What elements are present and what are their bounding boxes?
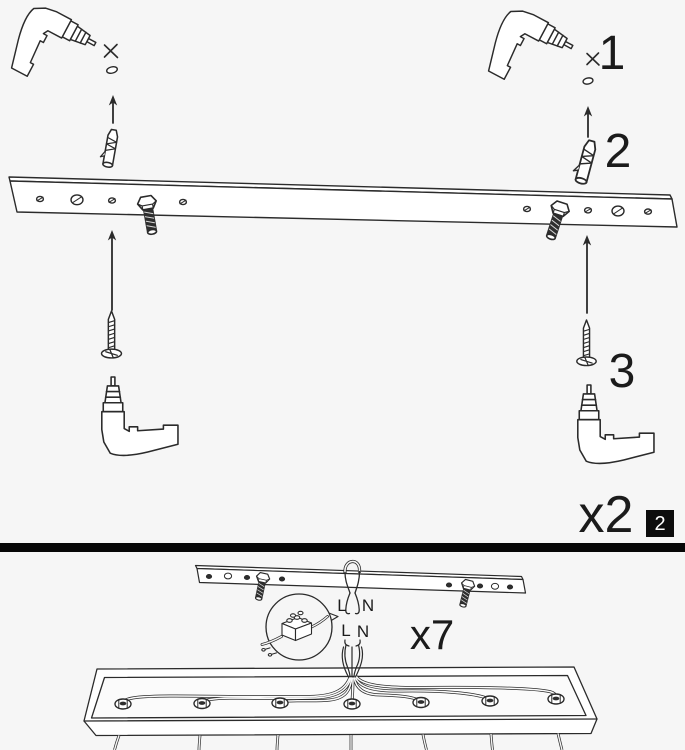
ceiling-hole-icon xyxy=(106,66,118,75)
multiplier-x7: x7 xyxy=(410,611,454,658)
step-badge: 2 xyxy=(646,510,674,537)
cable-gland-nut xyxy=(548,694,564,704)
drill-icon xyxy=(2,1,100,98)
rail-hole-large xyxy=(612,206,624,216)
step-number-1: 1 xyxy=(599,27,626,80)
step-number-2: 2 xyxy=(605,125,632,178)
top-panel: 1 2 3 x2 2 xyxy=(2,1,677,544)
cable-gland-nut xyxy=(272,698,288,708)
screw-icon xyxy=(102,311,122,358)
cable-gland-nut xyxy=(344,699,360,709)
wire-label-live-lower: L xyxy=(341,621,350,640)
drill-icon xyxy=(479,4,577,101)
step-number-3: 3 xyxy=(609,345,636,398)
assembly-instructions-page: 1 2 3 x2 2 xyxy=(0,0,685,750)
arrow-up-icon xyxy=(584,106,592,137)
arrow-up-icon xyxy=(109,95,117,123)
cable-gland-nut xyxy=(413,698,429,708)
pendant-wires xyxy=(115,734,563,750)
ceiling-hole-icon xyxy=(582,77,593,85)
arrow-up-icon xyxy=(108,230,116,310)
rail-hole-small xyxy=(645,209,652,214)
rail-hole-small xyxy=(180,199,187,204)
rail-hole-small xyxy=(524,206,531,211)
instruction-diagram: 1 2 3 x2 2 xyxy=(0,0,685,750)
wire-label-neutral-lower: N xyxy=(357,622,369,641)
rail-hole-small xyxy=(37,196,44,201)
drill-icon xyxy=(102,377,178,455)
arrow-up-icon xyxy=(583,235,591,313)
section-divider xyxy=(0,543,685,552)
rail-hole-small xyxy=(109,198,116,203)
wire-label-neutral-upper: N xyxy=(362,596,374,615)
terminal-block-magnifier xyxy=(262,594,338,660)
step-badge-number: 2 xyxy=(654,513,665,535)
wall-anchor-icon xyxy=(99,128,119,167)
rail-hole-large xyxy=(71,195,83,205)
pilot-hole-cross-icon xyxy=(587,53,599,65)
cable-gland-nut xyxy=(194,699,210,709)
cable-gland-nut xyxy=(115,699,131,709)
wire-label-live-upper: L xyxy=(337,596,346,615)
pilot-hole-cross-icon xyxy=(105,45,118,58)
canopy-tray xyxy=(84,667,597,736)
bottom-panel: L N L N xyxy=(84,561,597,750)
multiplier-x2: x2 xyxy=(579,486,634,544)
rail-hole-small xyxy=(585,208,592,213)
screw-icon xyxy=(577,320,596,366)
wall-anchor-icon xyxy=(571,138,597,184)
cable-gland-nut xyxy=(482,696,498,706)
